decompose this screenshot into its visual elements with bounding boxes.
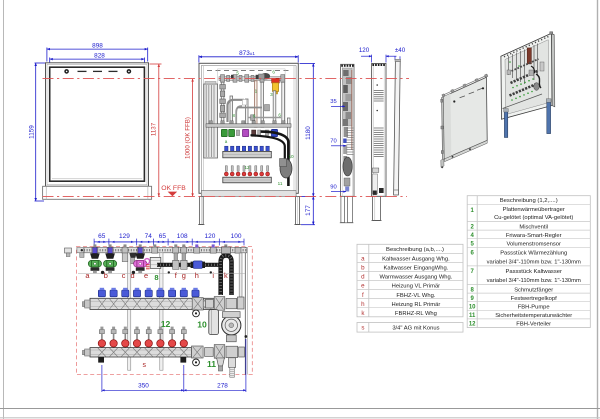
svg-text:FBH-Verteiler: FBH-Verteiler xyxy=(516,322,551,328)
svg-text:b: b xyxy=(361,265,365,272)
svg-text:1000 (OK FFB): 1000 (OK FFB) xyxy=(184,117,191,159)
svg-text:s: s xyxy=(143,362,147,369)
svg-text:k: k xyxy=(224,271,228,280)
svg-text:70: 70 xyxy=(330,139,336,145)
svg-text:Mischventil: Mischventil xyxy=(519,224,548,230)
svg-text:100: 100 xyxy=(231,233,242,240)
svg-text:h: h xyxy=(195,271,199,280)
svg-text:8: 8 xyxy=(154,273,158,282)
svg-text:873±1: 873±1 xyxy=(239,50,255,57)
svg-text:Cu-gelötet (optimal VA-gelötet: Cu-gelötet (optimal VA-gelötet) xyxy=(494,215,573,221)
svg-text:Passstück Kaltwasser: Passstück Kaltwasser xyxy=(506,269,562,275)
svg-text:variabel 3/4"-110mm bzw. 1"-13: variabel 3/4"-110mm bzw. 1"-130mm xyxy=(487,278,581,284)
svg-text:350: 350 xyxy=(138,383,149,390)
svg-text:10: 10 xyxy=(469,305,476,311)
svg-text:Beschreibung (1,2,....): Beschreibung (1,2,....) xyxy=(500,198,558,204)
svg-text:12: 12 xyxy=(469,322,476,328)
svg-text:3/4" AG mit Konus: 3/4" AG mit Konus xyxy=(392,325,439,331)
svg-text:Kaltwasser EingangWhg.: Kaltwasser EingangWhg. xyxy=(384,266,449,272)
svg-text:108: 108 xyxy=(177,233,188,240)
svg-text:177: 177 xyxy=(305,205,312,216)
svg-text:Plattenwärmeübertrager: Plattenwärmeübertrager xyxy=(503,207,565,213)
svg-text:a: a xyxy=(85,271,90,280)
svg-text:h: h xyxy=(361,301,365,308)
svg-text:65: 65 xyxy=(98,233,106,240)
svg-text:s: s xyxy=(361,324,364,331)
svg-text:120: 120 xyxy=(359,47,370,54)
svg-text:1180: 1180 xyxy=(305,126,312,140)
svg-text:129: 129 xyxy=(119,233,130,240)
svg-text:FBH-Pumpe: FBH-Pumpe xyxy=(518,305,550,311)
svg-text:variabel 3/4"-110mm bzw. 1"-13: variabel 3/4"-110mm bzw. 1"-130mm xyxy=(487,260,581,266)
svg-text:FBRHZ-RL Whg: FBRHZ-RL Whg xyxy=(395,311,437,317)
svg-text:FBHZ-VL Whg.: FBHZ-VL Whg. xyxy=(396,293,435,299)
svg-text:Heizung RL Primär: Heizung RL Primär xyxy=(392,302,441,308)
svg-text:Beschreibung (a,b,....): Beschreibung (a,b,....) xyxy=(386,247,444,253)
svg-text:g: g xyxy=(182,271,186,280)
svg-text:±40: ±40 xyxy=(395,47,406,54)
svg-text:1159: 1159 xyxy=(29,125,36,139)
svg-text:5: 5 xyxy=(236,71,239,76)
svg-text:Festwertregelkopf: Festwertregelkopf xyxy=(511,296,557,302)
svg-text:OK FFB: OK FFB xyxy=(161,185,186,192)
svg-text:i: i xyxy=(212,271,214,280)
svg-text:9: 9 xyxy=(253,114,256,119)
svg-text:898: 898 xyxy=(92,42,103,49)
svg-text:12: 12 xyxy=(161,319,171,329)
svg-text:35: 35 xyxy=(330,99,336,105)
svg-text:8: 8 xyxy=(232,113,235,118)
svg-text:c: c xyxy=(122,271,126,280)
svg-text:Passstück Wärmezählung: Passstück Wärmezählung xyxy=(500,251,567,257)
svg-text:f: f xyxy=(362,292,364,299)
svg-text:e: e xyxy=(144,271,148,280)
svg-text:6: 6 xyxy=(272,70,275,75)
svg-text:Heizung VL Primär: Heizung VL Primär xyxy=(392,284,441,290)
svg-text:Volumenstromsensor: Volumenstromsensor xyxy=(506,242,561,248)
svg-text:12: 12 xyxy=(244,165,250,170)
svg-text:f: f xyxy=(175,271,178,280)
svg-text:11: 11 xyxy=(278,181,283,186)
svg-text:a: a xyxy=(225,139,228,144)
svg-text:e: e xyxy=(361,283,365,290)
svg-text:3: 3 xyxy=(270,92,273,97)
svg-text:828: 828 xyxy=(94,52,105,59)
svg-text:11: 11 xyxy=(469,313,476,319)
svg-text:Schmutzfänger: Schmutzfänger xyxy=(514,287,553,293)
svg-text:1: 1 xyxy=(255,89,258,94)
svg-text:6: 6 xyxy=(278,113,281,118)
svg-text:Sicherheitstemperaturwächter: Sicherheitstemperaturwächter xyxy=(495,313,572,319)
svg-text:120: 120 xyxy=(204,233,215,240)
svg-text:Kaltwasser Ausgang Whg.: Kaltwasser Ausgang Whg. xyxy=(382,257,450,263)
svg-text:Friwara-Smart-Regler: Friwara-Smart-Regler xyxy=(506,233,562,239)
svg-text:11: 11 xyxy=(207,359,216,369)
svg-text:1137: 1137 xyxy=(151,122,158,136)
svg-text:74: 74 xyxy=(145,233,153,240)
svg-text:b: b xyxy=(104,271,108,280)
svg-text:a: a xyxy=(361,256,365,263)
svg-text:278: 278 xyxy=(217,383,228,390)
svg-text:10: 10 xyxy=(197,320,207,330)
svg-text:90: 90 xyxy=(330,185,336,191)
svg-text:Warmwasser Ausgang Whg.: Warmwasser Ausgang Whg. xyxy=(379,275,452,281)
svg-text:d: d xyxy=(361,274,365,281)
svg-text:65: 65 xyxy=(159,233,167,240)
svg-text:10: 10 xyxy=(288,154,294,159)
